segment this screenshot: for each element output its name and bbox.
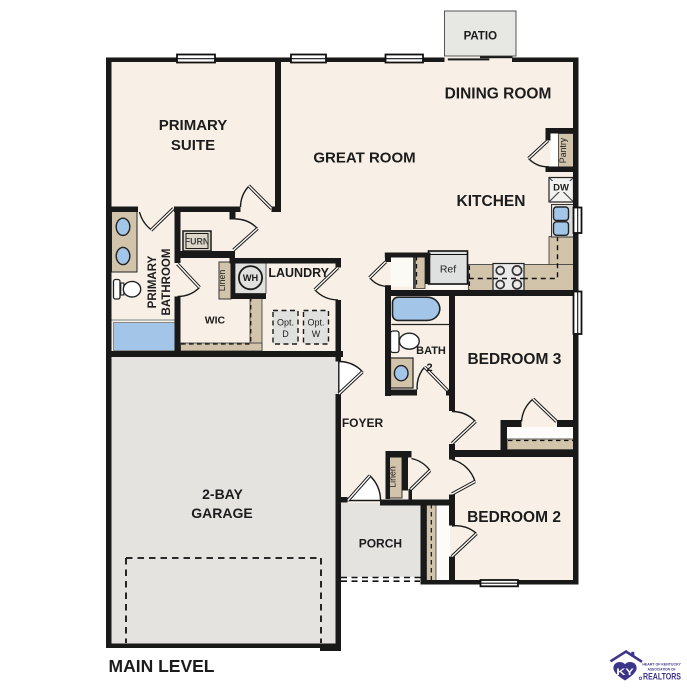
- svg-text:Pantry: Pantry: [558, 137, 568, 163]
- svg-text:W: W: [312, 329, 321, 339]
- svg-text:Ref: Ref: [440, 264, 456, 276]
- svg-text:FURN: FURN: [185, 237, 209, 247]
- svg-text:2-BAY: 2-BAY: [202, 486, 243, 502]
- svg-text:PATIO: PATIO: [464, 30, 497, 42]
- svg-text:KITCHEN: KITCHEN: [457, 193, 526, 210]
- svg-text:WIC: WIC: [205, 315, 226, 327]
- svg-text:Opt.: Opt.: [277, 318, 294, 328]
- svg-text:2: 2: [427, 362, 433, 374]
- svg-text:SUITE: SUITE: [171, 137, 215, 154]
- svg-text:WH: WH: [243, 273, 259, 283]
- svg-text:BEDROOM 3: BEDROOM 3: [467, 351, 561, 368]
- svg-text:PRIMARY: PRIMARY: [159, 117, 228, 134]
- svg-text:MAIN LEVEL: MAIN LEVEL: [109, 656, 215, 676]
- svg-text:DW: DW: [553, 183, 569, 194]
- svg-text:GARAGE: GARAGE: [191, 505, 252, 521]
- svg-text:LAUNDRY: LAUNDRY: [268, 266, 329, 280]
- svg-text:HEART OF KENTUCKY: HEART OF KENTUCKY: [642, 663, 681, 667]
- svg-text:REALTORS: REALTORS: [643, 671, 681, 682]
- svg-text:PRIMARY: PRIMARY: [147, 255, 159, 308]
- svg-text:GREAT ROOM: GREAT ROOM: [313, 150, 415, 167]
- svg-text:Linen: Linen: [217, 270, 227, 292]
- svg-text:PORCH: PORCH: [359, 536, 402, 550]
- svg-text:BATH: BATH: [416, 345, 446, 357]
- svg-text:Opt.: Opt.: [307, 318, 324, 328]
- svg-text:DINING ROOM: DINING ROOM: [445, 86, 552, 103]
- svg-text:FOYER: FOYER: [342, 416, 384, 430]
- svg-text:D: D: [282, 329, 289, 339]
- svg-text:BATHROOM: BATHROOM: [161, 249, 173, 316]
- svg-text:KY: KY: [616, 667, 634, 678]
- svg-text:BEDROOM 2: BEDROOM 2: [467, 509, 561, 526]
